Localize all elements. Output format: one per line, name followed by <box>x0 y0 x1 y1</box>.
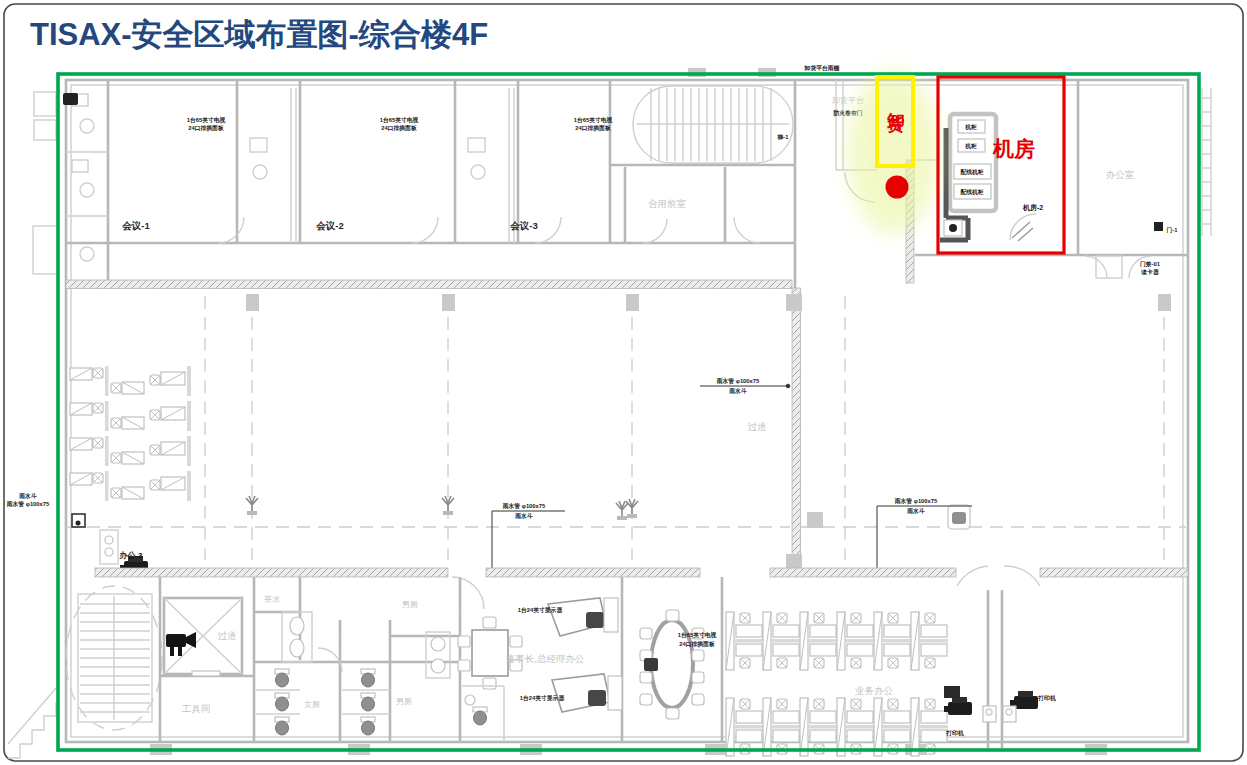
room-label-sales-office: 业务办公 <box>854 685 894 696</box>
room-tag-meeting1: 会议-1 <box>121 220 150 231</box>
svg-text:机柜: 机柜 <box>964 124 977 131</box>
room-label-vestibule: 合用前室 <box>648 198 686 209</box>
room-label-office-right: 办公室 <box>1106 169 1135 180</box>
room-label-tool-room: 工具间 <box>182 703 211 714</box>
svg-text:打印机: 打印机 <box>1037 695 1056 702</box>
svg-text:1台65英寸电视: 1台65英寸电视 <box>187 116 226 124</box>
stair-tag: 梯-1 <box>777 134 790 140</box>
svg-text:1台24英寸显示器: 1台24英寸显示器 <box>518 606 563 614</box>
room-tag-meeting2: 会议-2 <box>315 220 343 231</box>
svg-text:1台24英寸显示器: 1台24英寸显示器 <box>520 694 565 702</box>
floor-plan-svg: TISAX-安全区域布置图-综合楼4F <box>0 0 1247 765</box>
room-label-corridor-mid: 过道 <box>748 421 768 432</box>
server-room-label: 机房 <box>992 137 1035 160</box>
floor-plan-slide: TISAX-安全区域布置图-综合楼4F <box>0 0 1247 765</box>
svg-text:雨水斗: 雨水斗 <box>18 492 37 500</box>
svg-text:雨水管 φ100x75: 雨水管 φ100x75 <box>716 377 760 385</box>
svg-text:打印机: 打印机 <box>945 730 964 737</box>
svg-text:24口排插面板: 24口排插面板 <box>679 640 715 648</box>
svg-text:雨水斗: 雨水斗 <box>906 507 925 515</box>
red-dot-marker <box>886 176 909 199</box>
svg-text:24口排插面板: 24口排插面板 <box>381 124 417 132</box>
highlight-glow <box>847 70 939 234</box>
room-label-exec-office: 董事长,总经理办公 <box>506 653 585 664</box>
room-label-female-wc: 女厕 <box>304 700 320 709</box>
svg-text:1台65英寸电视: 1台65英寸电视 <box>574 116 613 124</box>
room-label-corridor-bottom: 过道 <box>218 630 238 641</box>
svg-text:24口排插面板: 24口排插面板 <box>575 124 611 132</box>
room-tag-meeting3: 会议-3 <box>509 220 537 231</box>
svg-text:雨水管 φ100x75: 雨水管 φ100x75 <box>502 502 546 510</box>
svg-text:雨水斗: 雨水斗 <box>514 512 533 520</box>
svg-text:配线机柜: 配线机柜 <box>960 168 983 176</box>
svg-text:读卡器: 读卡器 <box>1140 268 1159 276</box>
server-room-tag: 机房-2 <box>1022 203 1043 212</box>
room-label-tea: 茶水 <box>264 595 280 604</box>
roof-note: 卸货平台雨棚 <box>804 64 840 72</box>
svg-text:1台65英寸电视: 1台65英寸电视 <box>380 116 419 124</box>
page-title: TISAX-安全区域布置图-综合楼4F <box>30 17 488 52</box>
room-label-male-wc-bottom: 男厕 <box>396 697 412 706</box>
svg-text:24口排插面板: 24口排插面板 <box>188 124 224 132</box>
svg-text:门禁-01: 门禁-01 <box>1140 260 1161 268</box>
svg-text:雨水管 φ100x75: 雨水管 φ100x75 <box>6 500 50 508</box>
svg-text:雨水斗: 雨水斗 <box>728 387 747 395</box>
svg-text:配线机柜: 配线机柜 <box>960 188 983 196</box>
office-area-tag: 办公-3 <box>118 551 143 560</box>
door-tag: 门-1 <box>1167 226 1179 234</box>
room-label-male-wc-top: 男厕 <box>402 600 418 609</box>
svg-text:机柜: 机柜 <box>964 143 977 150</box>
svg-text:雨水管 φ100x75: 雨水管 φ100x75 <box>894 497 938 505</box>
svg-text:1台65英寸电视: 1台65英寸电视 <box>678 631 717 639</box>
